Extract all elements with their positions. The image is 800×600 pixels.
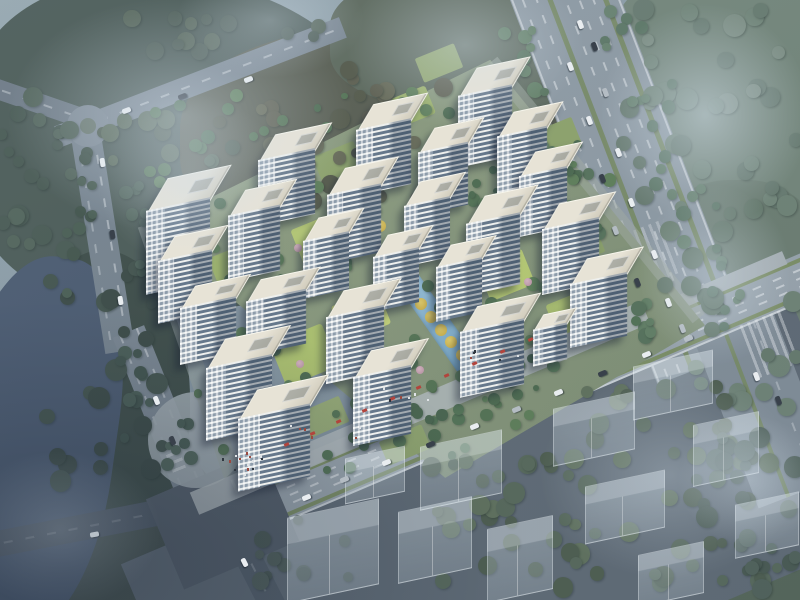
tree bbox=[693, 18, 709, 34]
tree bbox=[645, 326, 656, 337]
tree bbox=[559, 513, 572, 526]
gold-tree bbox=[445, 336, 457, 348]
tree bbox=[37, 177, 50, 190]
tree bbox=[453, 404, 464, 415]
building-facade bbox=[533, 322, 567, 367]
tree bbox=[123, 393, 137, 407]
tree bbox=[581, 386, 593, 398]
tree bbox=[201, 14, 212, 25]
pedestrian bbox=[247, 468, 249, 471]
building-facade bbox=[570, 271, 627, 348]
tree bbox=[158, 163, 171, 176]
building-facade bbox=[228, 204, 280, 281]
tree bbox=[0, 129, 7, 139]
tree bbox=[60, 121, 78, 139]
tree bbox=[604, 5, 617, 18]
pedestrian bbox=[239, 458, 241, 461]
pedestrian bbox=[355, 437, 357, 440]
tree bbox=[693, 160, 711, 178]
pedestrian bbox=[470, 357, 472, 360]
tree bbox=[354, 90, 366, 102]
pedestrian bbox=[499, 359, 501, 362]
tree bbox=[649, 177, 663, 191]
tree bbox=[220, 15, 237, 32]
tree bbox=[755, 383, 773, 401]
tree bbox=[753, 3, 768, 18]
tree bbox=[777, 195, 798, 216]
apartment-building bbox=[570, 250, 627, 348]
tree bbox=[633, 0, 653, 20]
tree bbox=[150, 107, 161, 118]
pedestrian bbox=[517, 355, 519, 358]
tree bbox=[94, 442, 108, 456]
tree bbox=[631, 301, 646, 316]
tree bbox=[613, 451, 631, 469]
building-facade bbox=[238, 403, 310, 492]
tree bbox=[717, 575, 728, 586]
tree bbox=[681, 276, 701, 296]
tree bbox=[772, 46, 785, 59]
tree bbox=[789, 350, 800, 364]
tree bbox=[528, 26, 536, 34]
blossom-tree bbox=[294, 244, 302, 252]
pedestrian bbox=[252, 468, 254, 471]
tree bbox=[667, 79, 677, 89]
pedestrian bbox=[359, 426, 361, 429]
tree bbox=[146, 373, 168, 395]
tree bbox=[570, 557, 582, 569]
pedestrian bbox=[222, 458, 224, 461]
tree bbox=[146, 42, 164, 60]
pedestrian bbox=[244, 474, 246, 477]
tree bbox=[746, 84, 760, 98]
tree bbox=[482, 396, 488, 402]
tree bbox=[717, 538, 727, 548]
pedestrian bbox=[229, 460, 231, 463]
tree bbox=[436, 409, 447, 420]
tree bbox=[108, 155, 118, 165]
tree bbox=[719, 322, 729, 332]
tree bbox=[744, 156, 759, 171]
tree bbox=[717, 52, 733, 68]
tree bbox=[662, 100, 675, 113]
blossom-tree bbox=[416, 366, 424, 374]
pedestrian bbox=[414, 393, 416, 396]
tree bbox=[784, 456, 800, 478]
tree bbox=[117, 113, 132, 128]
building-facade bbox=[353, 365, 411, 446]
tree bbox=[553, 577, 574, 598]
tree bbox=[659, 150, 671, 162]
tree bbox=[489, 166, 497, 174]
tree bbox=[322, 450, 333, 461]
tree bbox=[254, 531, 271, 548]
tree bbox=[323, 466, 331, 474]
tree bbox=[533, 385, 539, 391]
tree bbox=[745, 561, 759, 575]
pedestrian bbox=[290, 425, 292, 428]
tree bbox=[161, 458, 174, 471]
tree bbox=[134, 181, 144, 191]
apartment-building bbox=[238, 378, 310, 491]
tree bbox=[161, 144, 179, 162]
tree bbox=[62, 228, 72, 238]
tree bbox=[480, 409, 493, 422]
tree bbox=[524, 410, 533, 419]
tree bbox=[7, 235, 20, 248]
tree bbox=[314, 104, 321, 111]
tree bbox=[735, 289, 745, 299]
roundabout-island bbox=[80, 118, 96, 134]
tree bbox=[52, 140, 63, 151]
apartment-building bbox=[303, 211, 349, 299]
future-phase-ghost-building bbox=[487, 515, 553, 600]
tree bbox=[633, 156, 646, 169]
tree bbox=[194, 389, 202, 397]
tree bbox=[13, 156, 24, 167]
tree bbox=[123, 10, 140, 27]
tree bbox=[39, 409, 55, 425]
tree bbox=[716, 261, 726, 271]
pedestrian bbox=[247, 463, 249, 466]
tree bbox=[213, 116, 225, 128]
tree bbox=[214, 198, 225, 209]
tree bbox=[204, 156, 214, 166]
tree bbox=[115, 356, 126, 367]
tree bbox=[87, 181, 97, 191]
pedestrian bbox=[427, 399, 429, 402]
tree bbox=[412, 407, 423, 418]
pedestrian bbox=[261, 458, 263, 461]
tree bbox=[281, 27, 294, 40]
pedestrian bbox=[246, 452, 248, 455]
pedestrian bbox=[389, 399, 391, 402]
tree bbox=[657, 277, 673, 293]
tree bbox=[4, 147, 14, 157]
blossom-tree bbox=[296, 360, 304, 368]
pedestrian bbox=[400, 396, 402, 399]
tree bbox=[707, 286, 718, 297]
pedestrian bbox=[304, 428, 306, 431]
tree bbox=[24, 238, 35, 249]
apartment-building bbox=[353, 342, 411, 446]
tree bbox=[333, 151, 346, 164]
tree bbox=[704, 322, 720, 338]
tree bbox=[696, 506, 718, 528]
tree bbox=[469, 191, 476, 198]
tree bbox=[138, 331, 154, 347]
pedestrian bbox=[249, 456, 251, 459]
tree bbox=[144, 166, 155, 177]
aerial-rendering-canvas bbox=[0, 0, 800, 600]
tree bbox=[171, 445, 181, 455]
tree bbox=[177, 419, 185, 427]
tree bbox=[168, 11, 182, 25]
tree bbox=[259, 126, 269, 136]
tree bbox=[765, 181, 779, 195]
tree bbox=[783, 291, 800, 311]
pedestrian bbox=[408, 397, 410, 400]
tree bbox=[503, 482, 525, 504]
tree bbox=[340, 61, 358, 79]
tree bbox=[50, 470, 72, 492]
tree bbox=[671, 135, 691, 155]
tree bbox=[252, 572, 269, 589]
tree bbox=[330, 109, 349, 128]
apartment-building bbox=[533, 309, 567, 366]
tree bbox=[134, 366, 147, 379]
tree bbox=[631, 316, 641, 326]
tree bbox=[644, 55, 658, 69]
pedestrian bbox=[311, 436, 313, 439]
tree bbox=[332, 410, 340, 418]
tree bbox=[744, 199, 763, 218]
pedestrian bbox=[252, 460, 254, 463]
apartment-building bbox=[460, 296, 524, 398]
tree bbox=[33, 113, 46, 126]
pedestrian bbox=[299, 428, 301, 431]
pedestrian bbox=[383, 387, 385, 390]
tree bbox=[602, 43, 611, 52]
tree bbox=[420, 104, 432, 116]
tree bbox=[126, 208, 139, 221]
tree bbox=[668, 447, 680, 459]
tree bbox=[426, 380, 437, 391]
tree bbox=[724, 207, 737, 220]
pedestrian bbox=[234, 469, 236, 472]
tree bbox=[434, 78, 453, 97]
tree bbox=[174, 100, 185, 111]
tree bbox=[77, 177, 85, 185]
tree bbox=[789, 551, 800, 563]
tree bbox=[682, 247, 704, 269]
tree bbox=[185, 17, 198, 30]
tree bbox=[67, 247, 81, 261]
tree bbox=[712, 221, 733, 242]
pedestrian bbox=[235, 455, 237, 458]
tree bbox=[510, 419, 521, 430]
pedestrian bbox=[473, 352, 475, 355]
tree bbox=[641, 94, 650, 103]
tree bbox=[134, 416, 152, 434]
tree bbox=[569, 519, 580, 530]
tree bbox=[179, 438, 190, 449]
tree bbox=[681, 4, 697, 20]
tree bbox=[23, 87, 43, 107]
tree bbox=[8, 208, 25, 225]
tree bbox=[88, 387, 110, 409]
tree bbox=[522, 457, 535, 470]
gold-tree bbox=[435, 324, 447, 336]
tree bbox=[616, 23, 628, 35]
tree bbox=[676, 88, 698, 110]
tree bbox=[120, 433, 129, 442]
tree bbox=[667, 189, 678, 200]
tree bbox=[135, 260, 144, 269]
apartment-building bbox=[228, 182, 280, 281]
tree bbox=[647, 120, 658, 131]
tree bbox=[65, 168, 77, 180]
blossom-tree bbox=[524, 278, 532, 286]
building-facade bbox=[303, 231, 349, 299]
tree bbox=[789, 133, 800, 147]
